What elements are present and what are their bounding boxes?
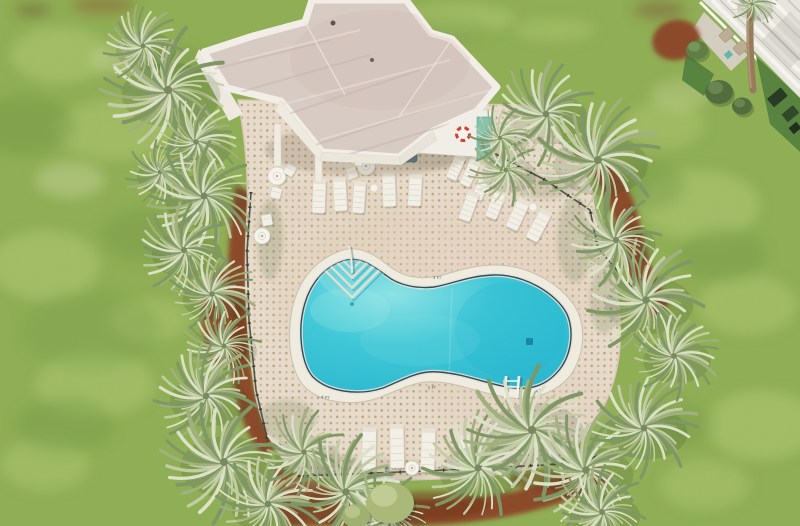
photo-grain-overlay (0, 0, 800, 526)
aerial-pool-scene: 3 FT5 FT4 FT4 FT (0, 0, 800, 526)
aerial-pool-photo: 3 FT5 FT4 FT4 FT (0, 0, 800, 526)
